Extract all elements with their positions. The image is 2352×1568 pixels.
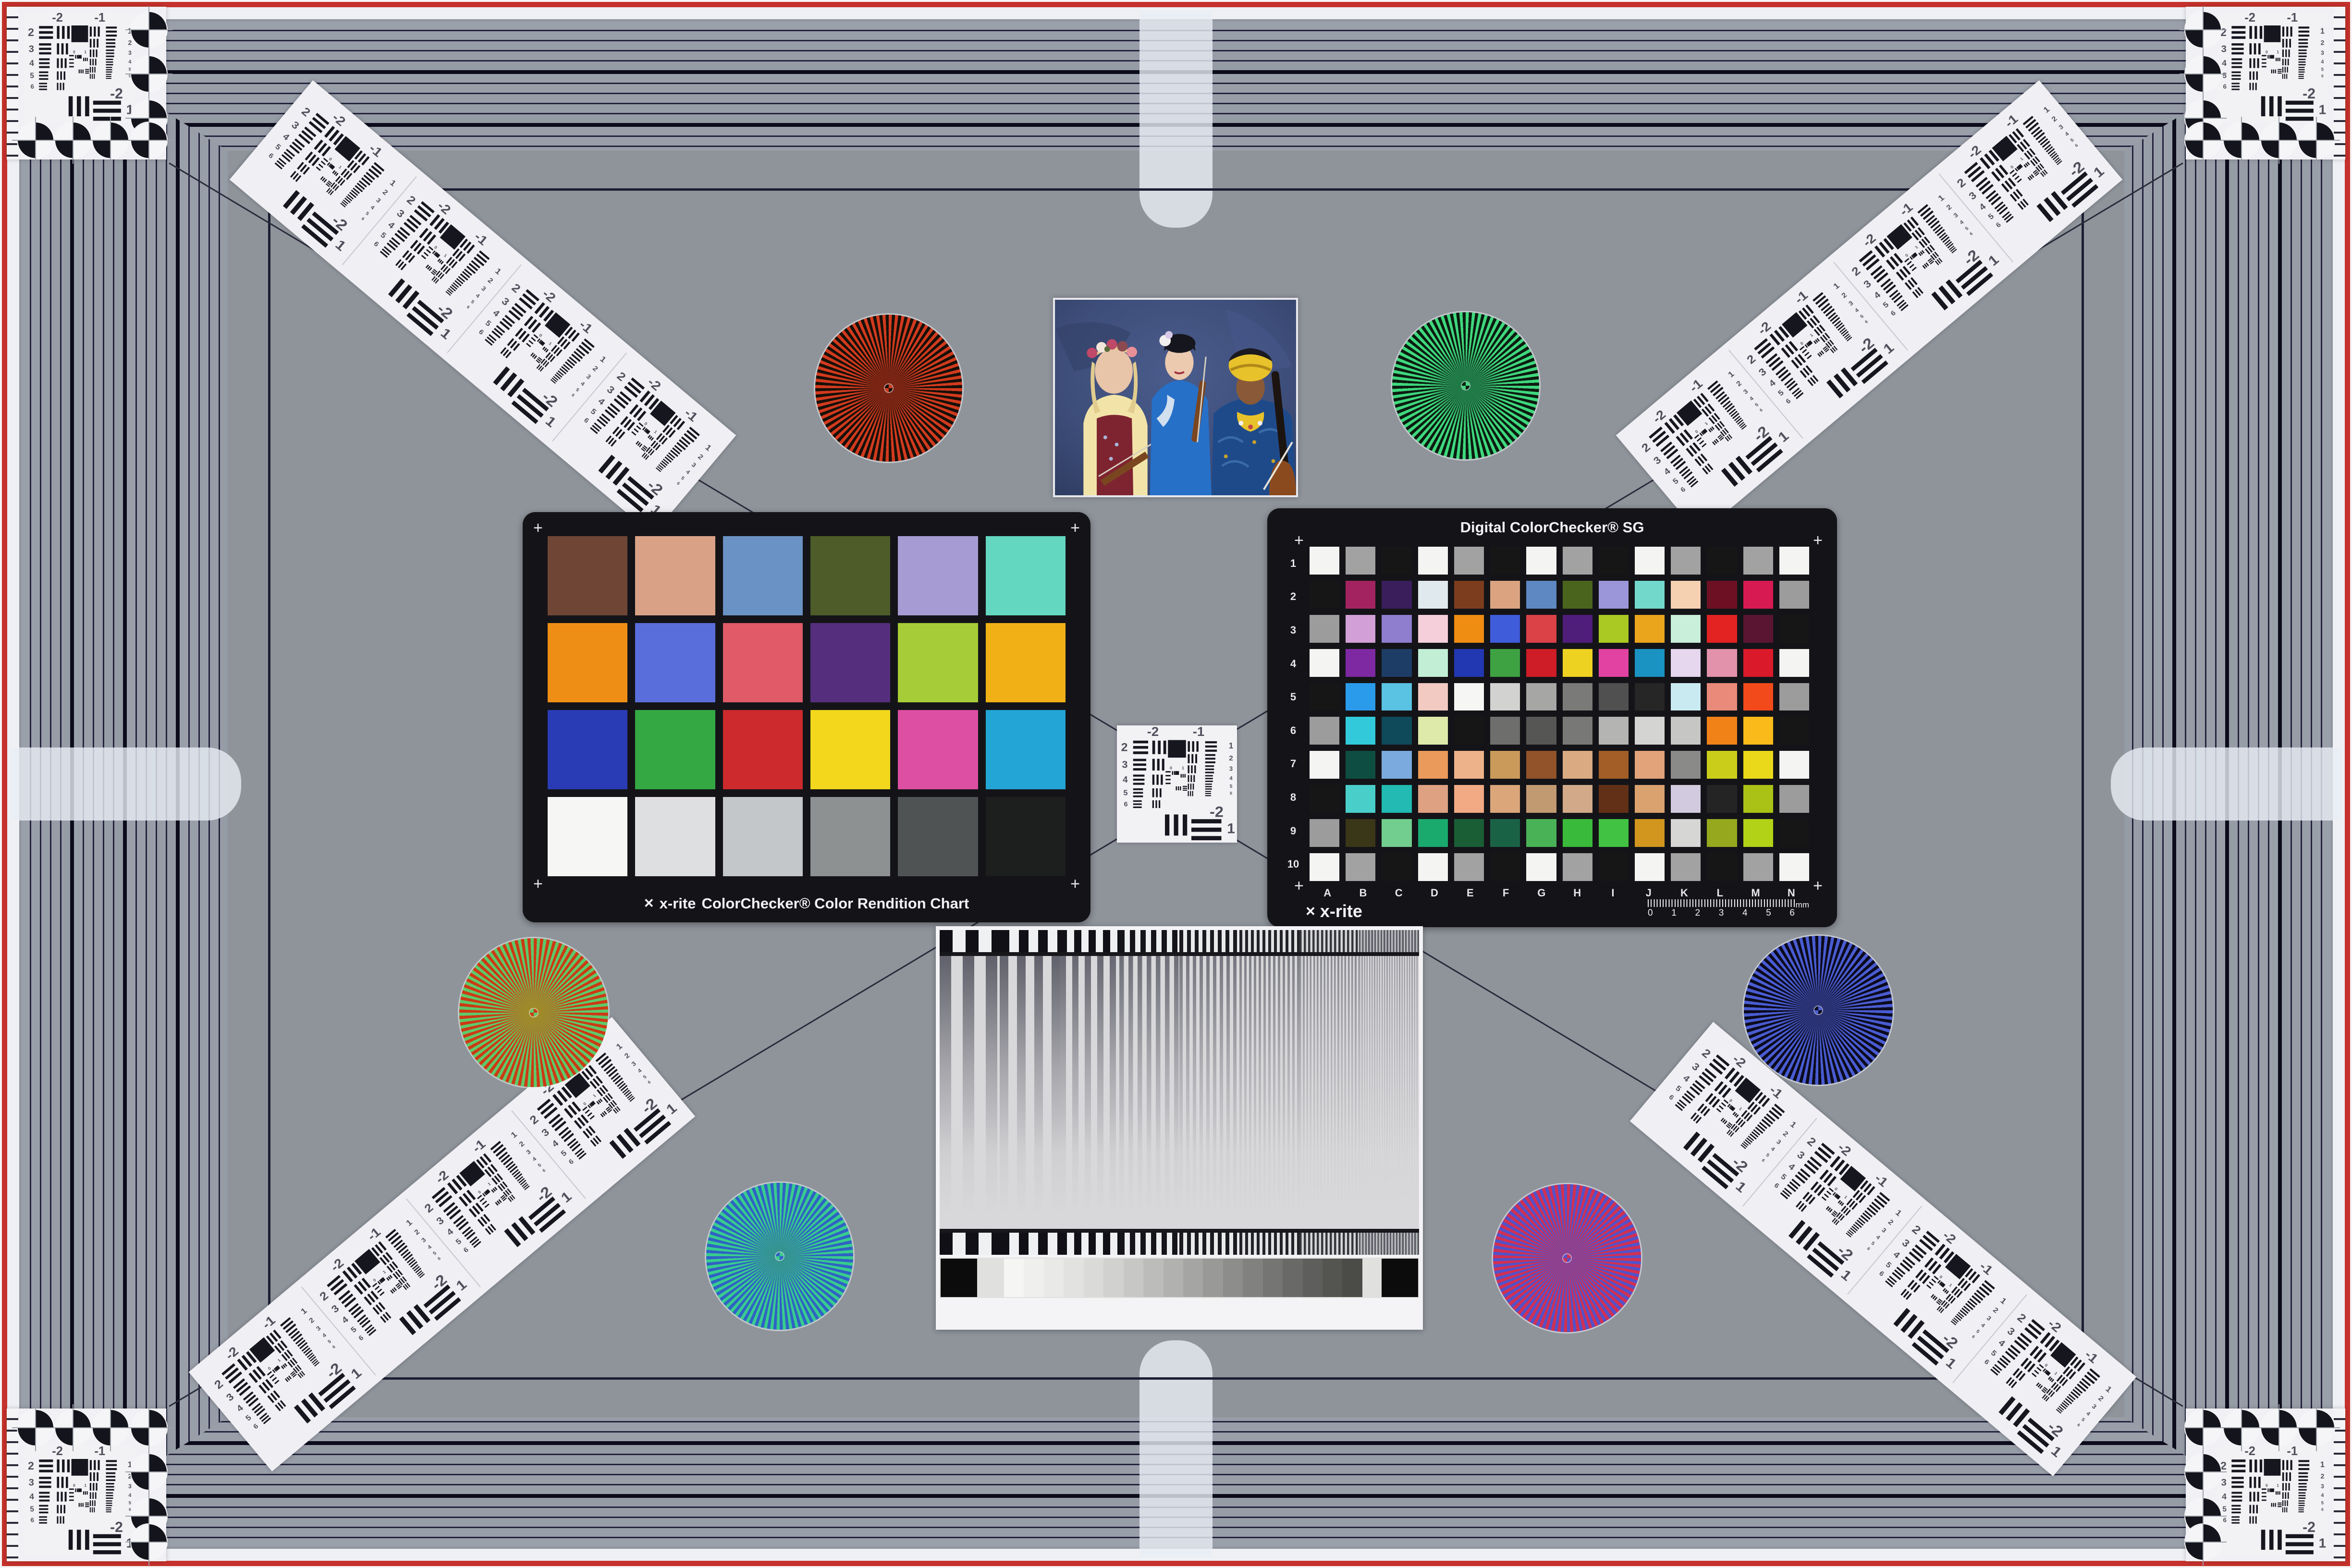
label: A — [1310, 887, 1345, 899]
color-patch — [1310, 581, 1339, 609]
color-patch — [1779, 649, 1809, 677]
color-patch — [1671, 581, 1701, 609]
quadrant-fiducial — [2185, 56, 2221, 92]
color-patch — [810, 536, 890, 615]
color-patch — [1004, 1259, 1024, 1297]
color-patch — [1563, 615, 1592, 643]
svg-text:5: 5 — [365, 211, 370, 217]
svg-text:1: 1 — [592, 1093, 597, 1099]
svg-text:4: 4 — [1229, 776, 1233, 782]
svg-text:3: 3 — [1900, 1237, 1912, 1249]
registration-plus: + — [1813, 877, 1823, 895]
color-patch — [723, 710, 803, 789]
svg-text:1: 1 — [1704, 421, 1709, 426]
usaf-target: -2-123456123456-2101 — [24, 12, 135, 123]
svg-text:4: 4 — [1977, 202, 1988, 213]
color-patch — [723, 536, 803, 615]
svg-text:5: 5 — [2321, 1500, 2324, 1505]
svg-text:1: 1 — [548, 341, 553, 346]
color-patch — [1707, 785, 1737, 813]
color-patch — [635, 623, 715, 702]
color-patch — [1490, 717, 1520, 745]
svg-text:6: 6 — [2321, 1507, 2324, 1512]
svg-text:4: 4 — [29, 1492, 34, 1501]
svg-text:2: 2 — [404, 193, 417, 208]
svg-text:6: 6 — [1679, 486, 1687, 494]
svg-text:2: 2 — [1945, 203, 1953, 212]
color-patch — [1599, 547, 1629, 575]
label: 4 — [1290, 658, 1296, 670]
svg-text:6: 6 — [2321, 74, 2324, 78]
color-patch — [1490, 819, 1520, 847]
tick-strip — [7, 7, 18, 159]
svg-text:6: 6 — [252, 1422, 260, 1431]
color-patch — [1743, 853, 1773, 881]
quadrant-fiducial — [2185, 12, 2221, 48]
svg-text:4: 4 — [1749, 395, 1755, 402]
quadrant-fiducial — [55, 122, 91, 158]
svg-text:0: 0 — [2044, 1362, 2048, 1368]
color-patch — [1635, 649, 1665, 677]
svg-text:5: 5 — [1674, 1084, 1683, 1093]
color-patch — [1103, 1259, 1123, 1297]
svg-text:2: 2 — [1886, 1218, 1895, 1226]
svg-text:5: 5 — [1964, 226, 1970, 232]
svg-text:2: 2 — [2050, 115, 2058, 123]
svg-text:4: 4 — [637, 1067, 643, 1074]
svg-text:-1: -1 — [2287, 12, 2298, 24]
svg-text:6: 6 — [267, 152, 275, 160]
color-patch — [1382, 547, 1411, 575]
color-patch — [1779, 581, 1809, 609]
color-patch — [1283, 1259, 1302, 1297]
svg-text:2: 2 — [591, 365, 599, 373]
color-patch — [723, 623, 803, 702]
svg-text:3: 3 — [375, 196, 382, 204]
color-patch — [1454, 751, 1484, 779]
svg-text:2: 2 — [1840, 291, 1848, 300]
label: G — [1524, 887, 1559, 899]
svg-text:3: 3 — [434, 1214, 446, 1227]
color-patch — [548, 623, 627, 702]
usaf-target: -2-123456123456-2101 — [2217, 12, 2328, 123]
svg-text:4: 4 — [340, 1315, 351, 1326]
svg-text:6: 6 — [541, 1168, 546, 1173]
svg-text:5: 5 — [129, 1500, 131, 1505]
color-patch — [1418, 683, 1448, 711]
color-patch — [1671, 615, 1701, 643]
svg-text:2: 2 — [128, 39, 132, 47]
color-patch — [1635, 853, 1665, 881]
svg-text:1: 1 — [1985, 252, 2002, 269]
svg-text:1: 1 — [453, 1277, 470, 1294]
color-patch — [1707, 547, 1737, 575]
svg-text:2: 2 — [28, 1459, 34, 1472]
color-patch — [1346, 819, 1375, 847]
svg-text:4: 4 — [2222, 58, 2227, 68]
color-patch — [1526, 615, 1556, 643]
svg-text:1: 1 — [1726, 369, 1736, 379]
svg-text:-2: -2 — [1940, 1228, 1959, 1247]
svg-text:5: 5 — [2070, 137, 2075, 143]
color-patch — [1707, 751, 1737, 779]
svg-text:1: 1 — [653, 429, 658, 434]
svg-text:3: 3 — [2321, 49, 2324, 56]
colorchecker-sg: Digital ColorChecker® SG + + + + 1234567… — [1267, 508, 1837, 927]
svg-text:1: 1 — [2319, 102, 2326, 117]
label: B — [1345, 887, 1381, 899]
color-patch — [898, 536, 978, 615]
color-patch — [1779, 751, 1809, 779]
svg-text:2: 2 — [1121, 741, 1128, 754]
svg-text:2: 2 — [2220, 26, 2227, 38]
color-patch — [1671, 717, 1701, 745]
svg-text:3: 3 — [1742, 388, 1749, 395]
color-patch — [1490, 785, 1520, 813]
color-patch — [1490, 615, 1520, 643]
color-patch — [1310, 547, 1339, 575]
color-patch — [1635, 717, 1665, 745]
svg-text:6: 6 — [2223, 1516, 2226, 1523]
color-patch — [986, 797, 1066, 876]
svg-text:2: 2 — [518, 1140, 526, 1149]
color-patch — [1635, 581, 1665, 609]
svg-text:1: 1 — [703, 442, 713, 453]
svg-text:-2: -2 — [110, 86, 123, 102]
svg-text:4: 4 — [1123, 774, 1128, 784]
color-patch — [1599, 785, 1629, 813]
svg-text:3: 3 — [1122, 759, 1127, 771]
registration-plus: + — [1294, 531, 1304, 550]
sg-title: Digital ColorChecker® SG — [1267, 519, 1837, 536]
svg-text:5: 5 — [537, 1163, 543, 1168]
svg-text:4: 4 — [1980, 1322, 1986, 1329]
color-patch — [635, 710, 715, 789]
color-patch — [1346, 547, 1375, 575]
svg-text:5: 5 — [1754, 402, 1760, 408]
label: 2 — [1695, 908, 1700, 919]
svg-text:5: 5 — [1671, 477, 1680, 486]
sweep-bar-band-top — [940, 930, 1419, 952]
color-patch — [1526, 785, 1556, 813]
svg-text:5: 5 — [1765, 1152, 1771, 1158]
color-patch — [1563, 581, 1592, 609]
svg-text:1: 1 — [598, 354, 608, 364]
color-patch — [1382, 683, 1411, 711]
svg-text:3: 3 — [1985, 1314, 1993, 1322]
svg-text:5: 5 — [1859, 314, 1865, 319]
test-chart-scene: -2-123456123456-2101 -2-123456123456-210… — [0, 0, 2352, 1568]
svg-text:6: 6 — [1983, 1358, 1990, 1366]
color-patch — [1526, 683, 1556, 711]
color-patch — [1526, 819, 1556, 847]
svg-text:1: 1 — [1838, 1267, 1854, 1284]
quadrant-fiducial — [2299, 1410, 2334, 1445]
color-patch — [1323, 1259, 1342, 1297]
color-patch — [1024, 1259, 1043, 1297]
svg-text:5: 5 — [30, 72, 34, 80]
svg-text:1: 1 — [84, 50, 86, 54]
color-patch — [1342, 1259, 1362, 1297]
svg-text:2: 2 — [2320, 1472, 2324, 1480]
quadrant-fiducial — [2185, 122, 2221, 158]
svg-text:4: 4 — [2321, 1493, 2324, 1498]
siemens-star-red-green — [459, 938, 608, 1087]
svg-text:4: 4 — [1853, 307, 1860, 314]
svg-text:-2: -2 — [1147, 725, 1159, 739]
quadrant-fiducial — [2224, 1410, 2259, 1445]
svg-text:5: 5 — [1779, 1172, 1788, 1181]
sg-column-labels: ABCDEFGHIJKLMN — [1310, 887, 1809, 899]
svg-text:-2: -2 — [2303, 1519, 2315, 1535]
color-patch — [1599, 751, 1629, 779]
quadrant-fiducial — [131, 56, 167, 92]
color-patch — [1310, 717, 1339, 745]
svg-text:0: 0 — [1170, 766, 1172, 771]
svg-text:6: 6 — [437, 1256, 441, 1262]
svg-text:0: 0 — [73, 1483, 75, 1488]
svg-text:3: 3 — [690, 461, 697, 469]
svg-text:1: 1 — [1182, 766, 1184, 771]
svg-text:1: 1 — [1843, 1194, 1848, 1200]
quadrant-fiducial — [2261, 122, 2297, 158]
color-patch — [1310, 819, 1339, 847]
svg-text:1: 1 — [388, 178, 398, 188]
color-patch — [1454, 581, 1484, 609]
svg-text:4: 4 — [531, 1156, 538, 1163]
svg-text:6: 6 — [462, 1246, 470, 1254]
color-patch — [1263, 1259, 1283, 1297]
svg-text:6: 6 — [1773, 1182, 1780, 1190]
svg-text:6: 6 — [2076, 1422, 2081, 1428]
color-patch — [1707, 853, 1737, 881]
color-patch — [1064, 1259, 1083, 1297]
svg-text:2: 2 — [1735, 380, 1743, 388]
color-patch — [1779, 683, 1809, 711]
svg-text:3: 3 — [2090, 1403, 2097, 1410]
color-patch — [1490, 683, 1520, 711]
svg-text:1: 1 — [1831, 281, 1841, 291]
color-patch — [898, 797, 978, 876]
color-patch — [1124, 1259, 1143, 1297]
svg-text:-1: -1 — [259, 1313, 278, 1332]
usaf-target-center: -2-123456123456-2101 — [1117, 725, 1237, 843]
svg-text:5: 5 — [575, 387, 580, 393]
color-patch — [1303, 1259, 1323, 1297]
color-patch — [1084, 1259, 1103, 1297]
color-patch — [1418, 717, 1448, 745]
svg-text:6: 6 — [2223, 83, 2226, 90]
svg-text:5: 5 — [484, 318, 493, 328]
svg-text:4: 4 — [1767, 378, 1778, 389]
color-patch — [1671, 649, 1701, 677]
color-patch — [1490, 547, 1520, 575]
sweep-divider-line — [940, 952, 1419, 956]
registration-plus: + — [1294, 877, 1304, 895]
tick-strip — [2334, 1409, 2345, 1561]
svg-text:5: 5 — [30, 1505, 34, 1513]
svg-text:-2: -2 — [2244, 12, 2255, 24]
frequency-sweep-chart — [936, 926, 1423, 1330]
svg-text:-1: -1 — [682, 405, 700, 424]
siemens-star-red-blue — [1493, 1184, 1641, 1332]
svg-text:2: 2 — [413, 1228, 421, 1237]
color-patch — [1203, 1259, 1223, 1297]
svg-text:3: 3 — [605, 383, 617, 396]
color-patch — [1346, 615, 1375, 643]
svg-text:0: 0 — [477, 1189, 482, 1195]
color-patch — [1454, 547, 1484, 575]
color-patch — [810, 710, 890, 789]
svg-text:-1: -1 — [1687, 376, 1705, 395]
svg-text:-2: -2 — [1835, 1139, 1854, 1158]
svg-text:2: 2 — [1954, 176, 1968, 191]
svg-text:-1: -1 — [367, 141, 385, 159]
color-patch — [810, 797, 890, 876]
svg-text:5: 5 — [1989, 1348, 1998, 1358]
wedge-black-square — [941, 1259, 977, 1297]
color-patch — [1563, 649, 1592, 677]
label: K — [1666, 887, 1702, 899]
siemens-star-blue-black — [1744, 936, 1893, 1085]
color-patch — [1671, 547, 1701, 575]
svg-text:-1: -1 — [1193, 725, 1204, 739]
registration-plus: + — [1070, 519, 1080, 538]
color-patch — [1044, 1259, 1064, 1297]
svg-text:4: 4 — [685, 469, 691, 476]
color-patch — [635, 536, 715, 615]
svg-text:1: 1 — [2277, 50, 2279, 54]
svg-text:1: 1 — [2104, 1384, 2113, 1394]
svg-text:0: 0 — [1694, 429, 1699, 434]
color-patch — [1563, 785, 1592, 813]
svg-text:4: 4 — [426, 1244, 433, 1250]
svg-text:1: 1 — [2320, 1460, 2325, 1469]
svg-text:1: 1 — [487, 1181, 491, 1187]
svg-text:1: 1 — [1936, 193, 1946, 203]
svg-text:5: 5 — [2222, 1505, 2227, 1513]
svg-text:4: 4 — [550, 1139, 561, 1150]
svg-text:-1: -1 — [472, 229, 490, 248]
label: 10 — [1287, 858, 1299, 870]
label: 3 — [1290, 624, 1296, 637]
svg-text:6: 6 — [1785, 398, 1792, 406]
svg-text:4: 4 — [321, 1332, 328, 1339]
svg-text:5: 5 — [589, 406, 598, 416]
svg-text:-2: -2 — [645, 374, 663, 393]
svg-text:6: 6 — [2074, 143, 2079, 148]
color-patch — [1599, 819, 1629, 847]
usaf-target: -2-123456123456-2101 — [2217, 1445, 2328, 1556]
svg-text:2: 2 — [1850, 264, 1863, 279]
color-patch — [810, 623, 890, 702]
svg-text:5: 5 — [2222, 72, 2227, 80]
label: F — [1488, 887, 1523, 899]
sg-patch-grid — [1310, 547, 1809, 881]
svg-text:2: 2 — [1781, 1130, 1789, 1139]
svg-text:-1: -1 — [1872, 1171, 1891, 1189]
svg-text:6: 6 — [1761, 1158, 1766, 1163]
svg-text:6: 6 — [1889, 309, 1897, 318]
color-patch — [1454, 615, 1484, 643]
color-patch — [1635, 683, 1665, 711]
label: E — [1452, 887, 1488, 899]
quadrant-fiducial — [55, 1410, 91, 1445]
color-patch — [1743, 751, 1773, 779]
color-patch — [1743, 785, 1773, 813]
colorchecker-classic: + + + + × x-rite ColorChecker® Color Ren… — [523, 512, 1090, 922]
classic-logo-text: x-rite — [660, 895, 696, 912]
sg-logo-text: x-rite — [1320, 901, 1362, 921]
color-patch — [1490, 853, 1520, 881]
svg-text:4: 4 — [596, 396, 607, 407]
svg-text:4: 4 — [235, 1403, 245, 1414]
svg-text:1: 1 — [1788, 1119, 1798, 1129]
color-patch — [1526, 547, 1556, 575]
svg-text:1: 1 — [1229, 741, 1234, 750]
tick-strip — [2334, 7, 2345, 159]
color-patch — [1743, 581, 1773, 609]
color-patch — [1346, 853, 1375, 881]
label: 8 — [1290, 791, 1296, 804]
svg-text:1: 1 — [1809, 333, 1814, 338]
color-patch — [1382, 751, 1411, 779]
color-patch — [1563, 683, 1592, 711]
quadrant-fiducial — [2224, 122, 2259, 158]
label: N — [1774, 887, 1809, 899]
color-patch — [1382, 581, 1411, 609]
quadrant-fiducial — [2261, 1410, 2297, 1445]
svg-text:1: 1 — [338, 165, 343, 170]
svg-text:3: 3 — [1952, 211, 1960, 219]
svg-text:3: 3 — [2221, 44, 2227, 54]
label: I — [1595, 887, 1630, 899]
svg-text:3: 3 — [2321, 1483, 2324, 1490]
label: 9 — [1290, 825, 1296, 837]
svg-text:5: 5 — [1870, 1241, 1875, 1247]
svg-text:1: 1 — [1733, 1179, 1749, 1196]
svg-text:3: 3 — [1756, 366, 1768, 378]
svg-text:3: 3 — [29, 1477, 34, 1488]
svg-text:-2: -2 — [2303, 86, 2315, 102]
svg-text:3: 3 — [1966, 189, 1978, 202]
color-patch — [898, 710, 978, 789]
sweep-contrast-fade — [940, 956, 1419, 1229]
svg-text:6: 6 — [567, 1158, 575, 1166]
svg-text:5: 5 — [559, 1149, 568, 1158]
svg-text:2: 2 — [1991, 1306, 1999, 1315]
corner-panel-top-right: -2-123456123456-2101 — [2186, 7, 2345, 159]
svg-text:2: 2 — [1229, 754, 1233, 762]
usaf-target: -2-123456123456-2101 — [24, 1445, 135, 1556]
svg-text:1: 1 — [558, 1189, 575, 1206]
color-patch — [1418, 819, 1448, 847]
svg-text:5: 5 — [327, 1339, 333, 1345]
svg-text:3: 3 — [2005, 1325, 2017, 1337]
svg-text:3: 3 — [1775, 1138, 1782, 1146]
label: 5 — [1290, 691, 1296, 703]
svg-text:6: 6 — [361, 216, 366, 221]
svg-text:-1: -1 — [1977, 1259, 1996, 1277]
color-patch — [1310, 615, 1339, 643]
color-patch — [1707, 649, 1737, 677]
svg-text:3: 3 — [539, 1126, 551, 1139]
svg-text:4: 4 — [1874, 1234, 1881, 1241]
quadrant-fiducial — [131, 122, 167, 158]
color-patch — [898, 623, 978, 702]
sg-logo: × x-rite — [1306, 901, 1362, 921]
musicians-photo — [1053, 298, 1298, 497]
